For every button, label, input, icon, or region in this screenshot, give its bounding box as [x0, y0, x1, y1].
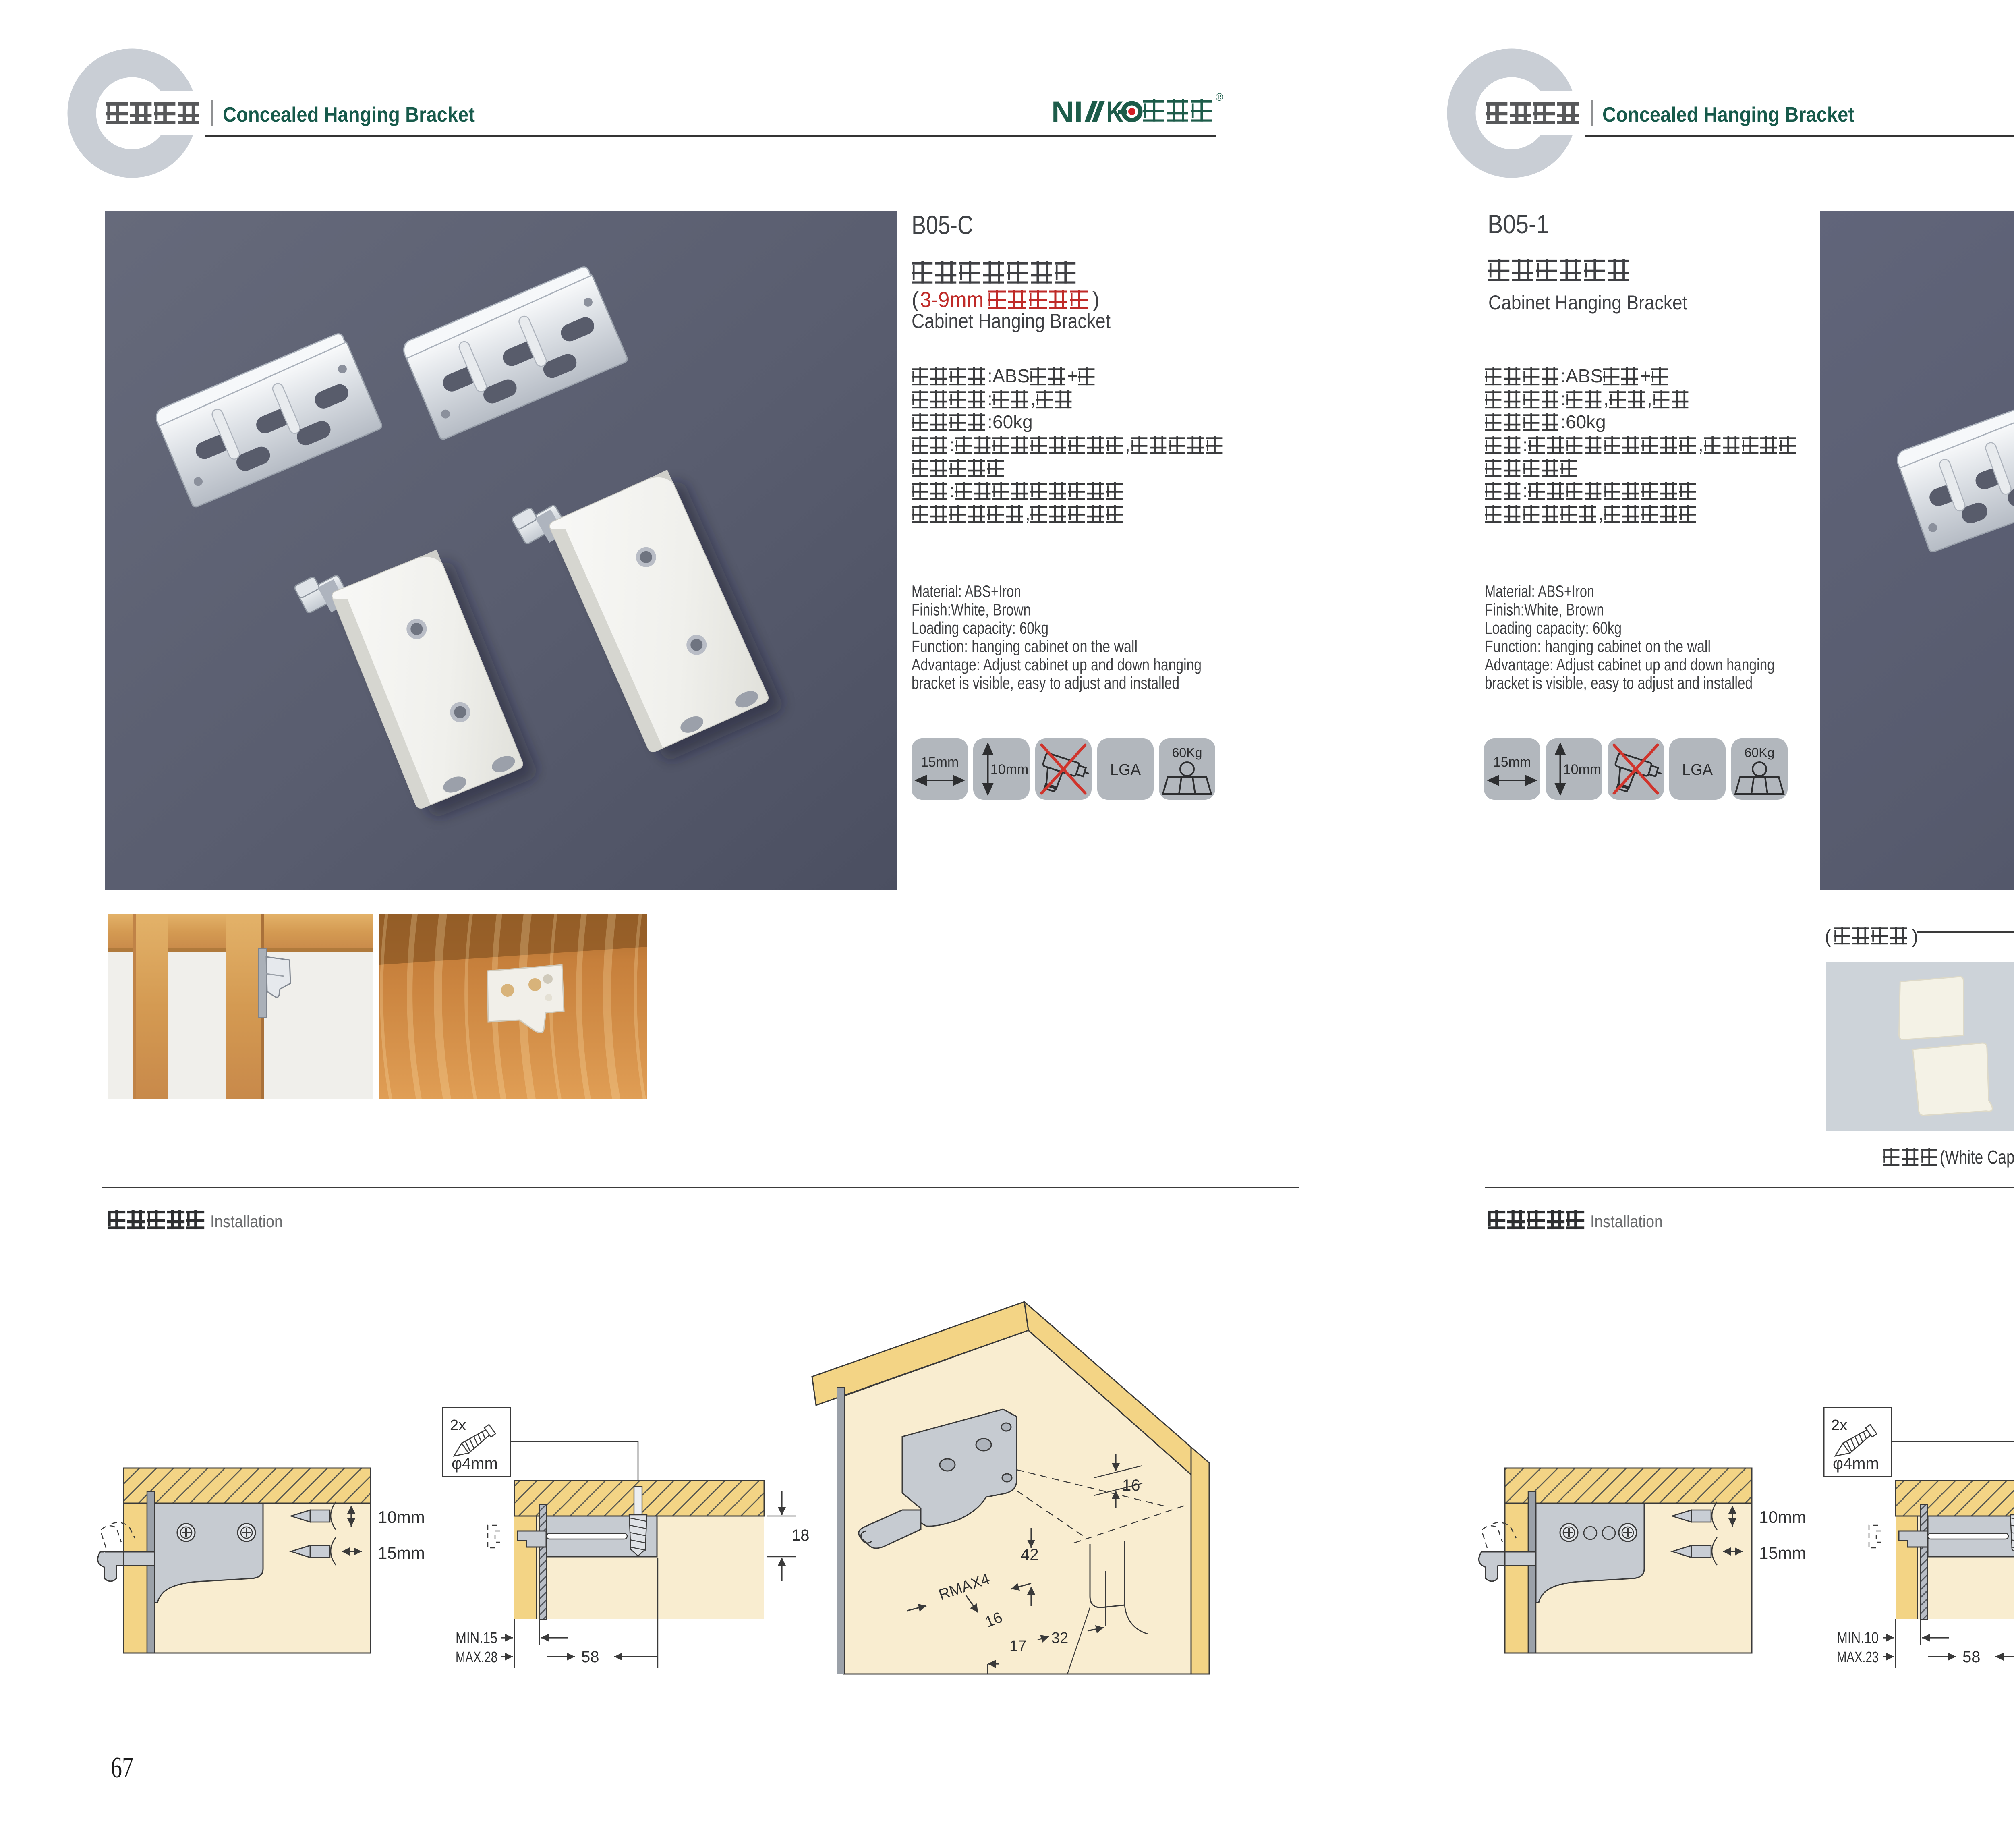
svg-text:Finish:White, Brown: Finish:White, Brown [1485, 600, 1604, 619]
svg-text:+: + [1640, 365, 1651, 386]
svg-text:67: 67 [111, 1751, 133, 1784]
svg-text::: : [987, 411, 992, 432]
svg-text:3-9mm: 3-9mm [920, 288, 984, 312]
svg-text:60Kg: 60Kg [1745, 745, 1775, 760]
svg-text::: : [987, 388, 992, 409]
svg-text:,: , [1604, 388, 1609, 409]
svg-text:15mm: 15mm [378, 1543, 425, 1562]
svg-text:Cabinet Hanging Bracket: Cabinet Hanging Bracket [912, 310, 1111, 332]
svg-text:bracket is visible, easy to ad: bracket is visible, easy to adjust and i… [912, 674, 1179, 693]
svg-text:60kg: 60kg [1566, 411, 1606, 432]
svg-text:10mm: 10mm [378, 1508, 425, 1527]
svg-text:®: ® [1216, 91, 1223, 103]
svg-text:Loading capacity: 60kg: Loading capacity: 60kg [912, 618, 1048, 637]
svg-text:MIN.10: MIN.10 [1837, 1630, 1879, 1647]
svg-text:10mm: 10mm [990, 762, 1028, 777]
svg-text::: : [949, 480, 955, 501]
svg-text::: : [987, 365, 992, 386]
svg-text:Concealed Hanging Bracket: Concealed Hanging Bracket [1602, 103, 1854, 127]
svg-text:,: , [1598, 503, 1604, 524]
svg-text::: : [1560, 388, 1566, 409]
svg-text:): ) [1912, 926, 1918, 948]
svg-text:ABS: ABS [1566, 365, 1603, 386]
svg-text:60kg: 60kg [992, 411, 1033, 432]
svg-text:60Kg: 60Kg [1172, 745, 1202, 760]
svg-text:MIN.15: MIN.15 [456, 1630, 497, 1647]
svg-text:(White Cap): (White Cap) [1940, 1147, 2014, 1168]
svg-text:NI: NI [1051, 95, 1083, 129]
svg-text:17: 17 [1009, 1638, 1026, 1655]
svg-text:Material: ABS+Iron: Material: ABS+Iron [912, 582, 1021, 601]
svg-text:15mm: 15mm [1759, 1543, 1806, 1562]
svg-text:MAX.28: MAX.28 [456, 1649, 497, 1666]
svg-text:Finish:White, Brown: Finish:White, Brown [912, 600, 1031, 619]
svg-text:2x: 2x [450, 1417, 466, 1434]
svg-text:Material: ABS+Iron: Material: ABS+Iron [1485, 582, 1594, 601]
svg-text:(: ( [912, 288, 919, 312]
svg-text:Function: hanging cabinet on t: Function: hanging cabinet on the wall [1485, 637, 1711, 656]
svg-text:φ4mm: φ4mm [1833, 1455, 1879, 1473]
svg-text:Installation: Installation [1590, 1212, 1663, 1231]
svg-text:15mm: 15mm [1493, 755, 1531, 770]
svg-text::: : [1560, 365, 1566, 386]
svg-text:,: , [1030, 388, 1036, 409]
svg-text:Advantage: Adjust cabinet up a: Advantage: Adjust cabinet up and down ha… [1485, 655, 1775, 674]
svg-text::: : [949, 434, 955, 455]
svg-text:32: 32 [1051, 1630, 1068, 1647]
svg-text::: : [1523, 434, 1528, 455]
svg-text:Concealed Hanging Bracket: Concealed Hanging Bracket [223, 103, 475, 127]
svg-text:,: , [1647, 388, 1652, 409]
svg-text:10mm: 10mm [1563, 762, 1601, 777]
svg-text:Loading capacity: 60kg: Loading capacity: 60kg [1485, 618, 1622, 637]
svg-text:): ) [1092, 288, 1100, 312]
svg-text:+: + [1067, 365, 1078, 386]
svg-text::: : [1523, 480, 1528, 501]
svg-text:2x: 2x [1831, 1417, 1847, 1434]
svg-text:Function: hanging cabinet on t: Function: hanging cabinet on the wall [912, 637, 1138, 656]
svg-text:(: ( [1825, 926, 1831, 948]
svg-text:,: , [1698, 434, 1703, 455]
svg-text:LGA: LGA [1682, 761, 1713, 778]
svg-text:,: , [1125, 434, 1130, 455]
svg-text:42: 42 [1021, 1546, 1039, 1564]
svg-text:58: 58 [581, 1648, 599, 1666]
svg-text:Advantage: Adjust cabinet up a: Advantage: Adjust cabinet up and down ha… [912, 655, 1202, 674]
svg-text:Cabinet Hanging Bracket: Cabinet Hanging Bracket [1488, 291, 1687, 314]
svg-text:58: 58 [1962, 1648, 1981, 1666]
svg-text:φ4mm: φ4mm [452, 1455, 498, 1473]
svg-text:B05-C: B05-C [912, 210, 973, 240]
svg-text:,: , [1025, 503, 1030, 524]
svg-text:16: 16 [1122, 1477, 1140, 1494]
svg-text:ABS: ABS [992, 365, 1030, 386]
svg-text:MAX.23: MAX.23 [1837, 1649, 1879, 1666]
svg-text::: : [1560, 411, 1566, 432]
svg-text:18: 18 [792, 1527, 810, 1544]
svg-text:10mm: 10mm [1759, 1508, 1806, 1527]
svg-text:B05-1: B05-1 [1488, 209, 1549, 239]
svg-text:bracket is visible, easy to ad: bracket is visible, easy to adjust and i… [1485, 674, 1753, 693]
svg-text:15mm: 15mm [921, 755, 959, 770]
svg-text:LGA: LGA [1110, 761, 1141, 778]
svg-text:Installation: Installation [210, 1212, 283, 1231]
